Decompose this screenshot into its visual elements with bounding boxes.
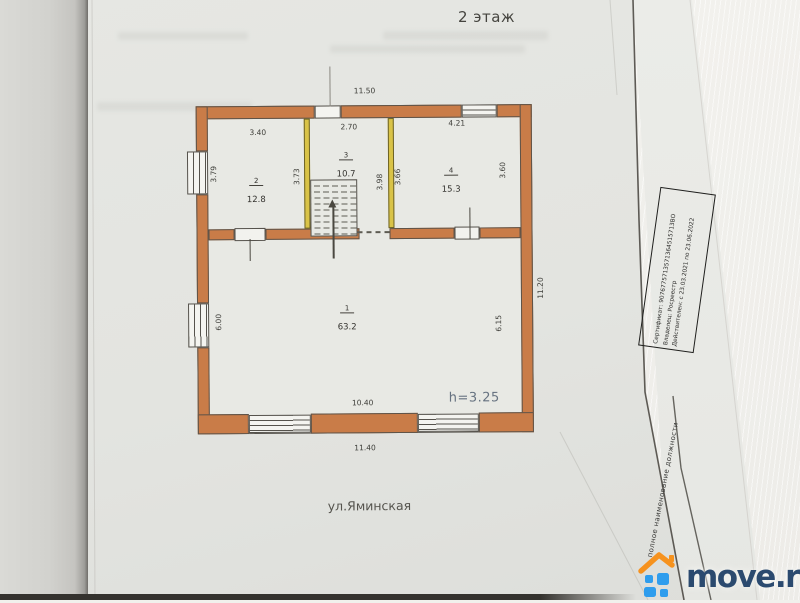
move-ru-wordmark: move.ru xyxy=(686,557,800,597)
house-logo-icon xyxy=(636,551,686,597)
move-ru-watermark: move.ru xyxy=(636,551,800,597)
table-edge xyxy=(0,594,636,600)
certificate-stamp-text: Сертификат: 9076775713571364515713ВО Вла… xyxy=(652,193,702,348)
photo-of-floor-plan: 2 этаж xyxy=(0,0,800,600)
